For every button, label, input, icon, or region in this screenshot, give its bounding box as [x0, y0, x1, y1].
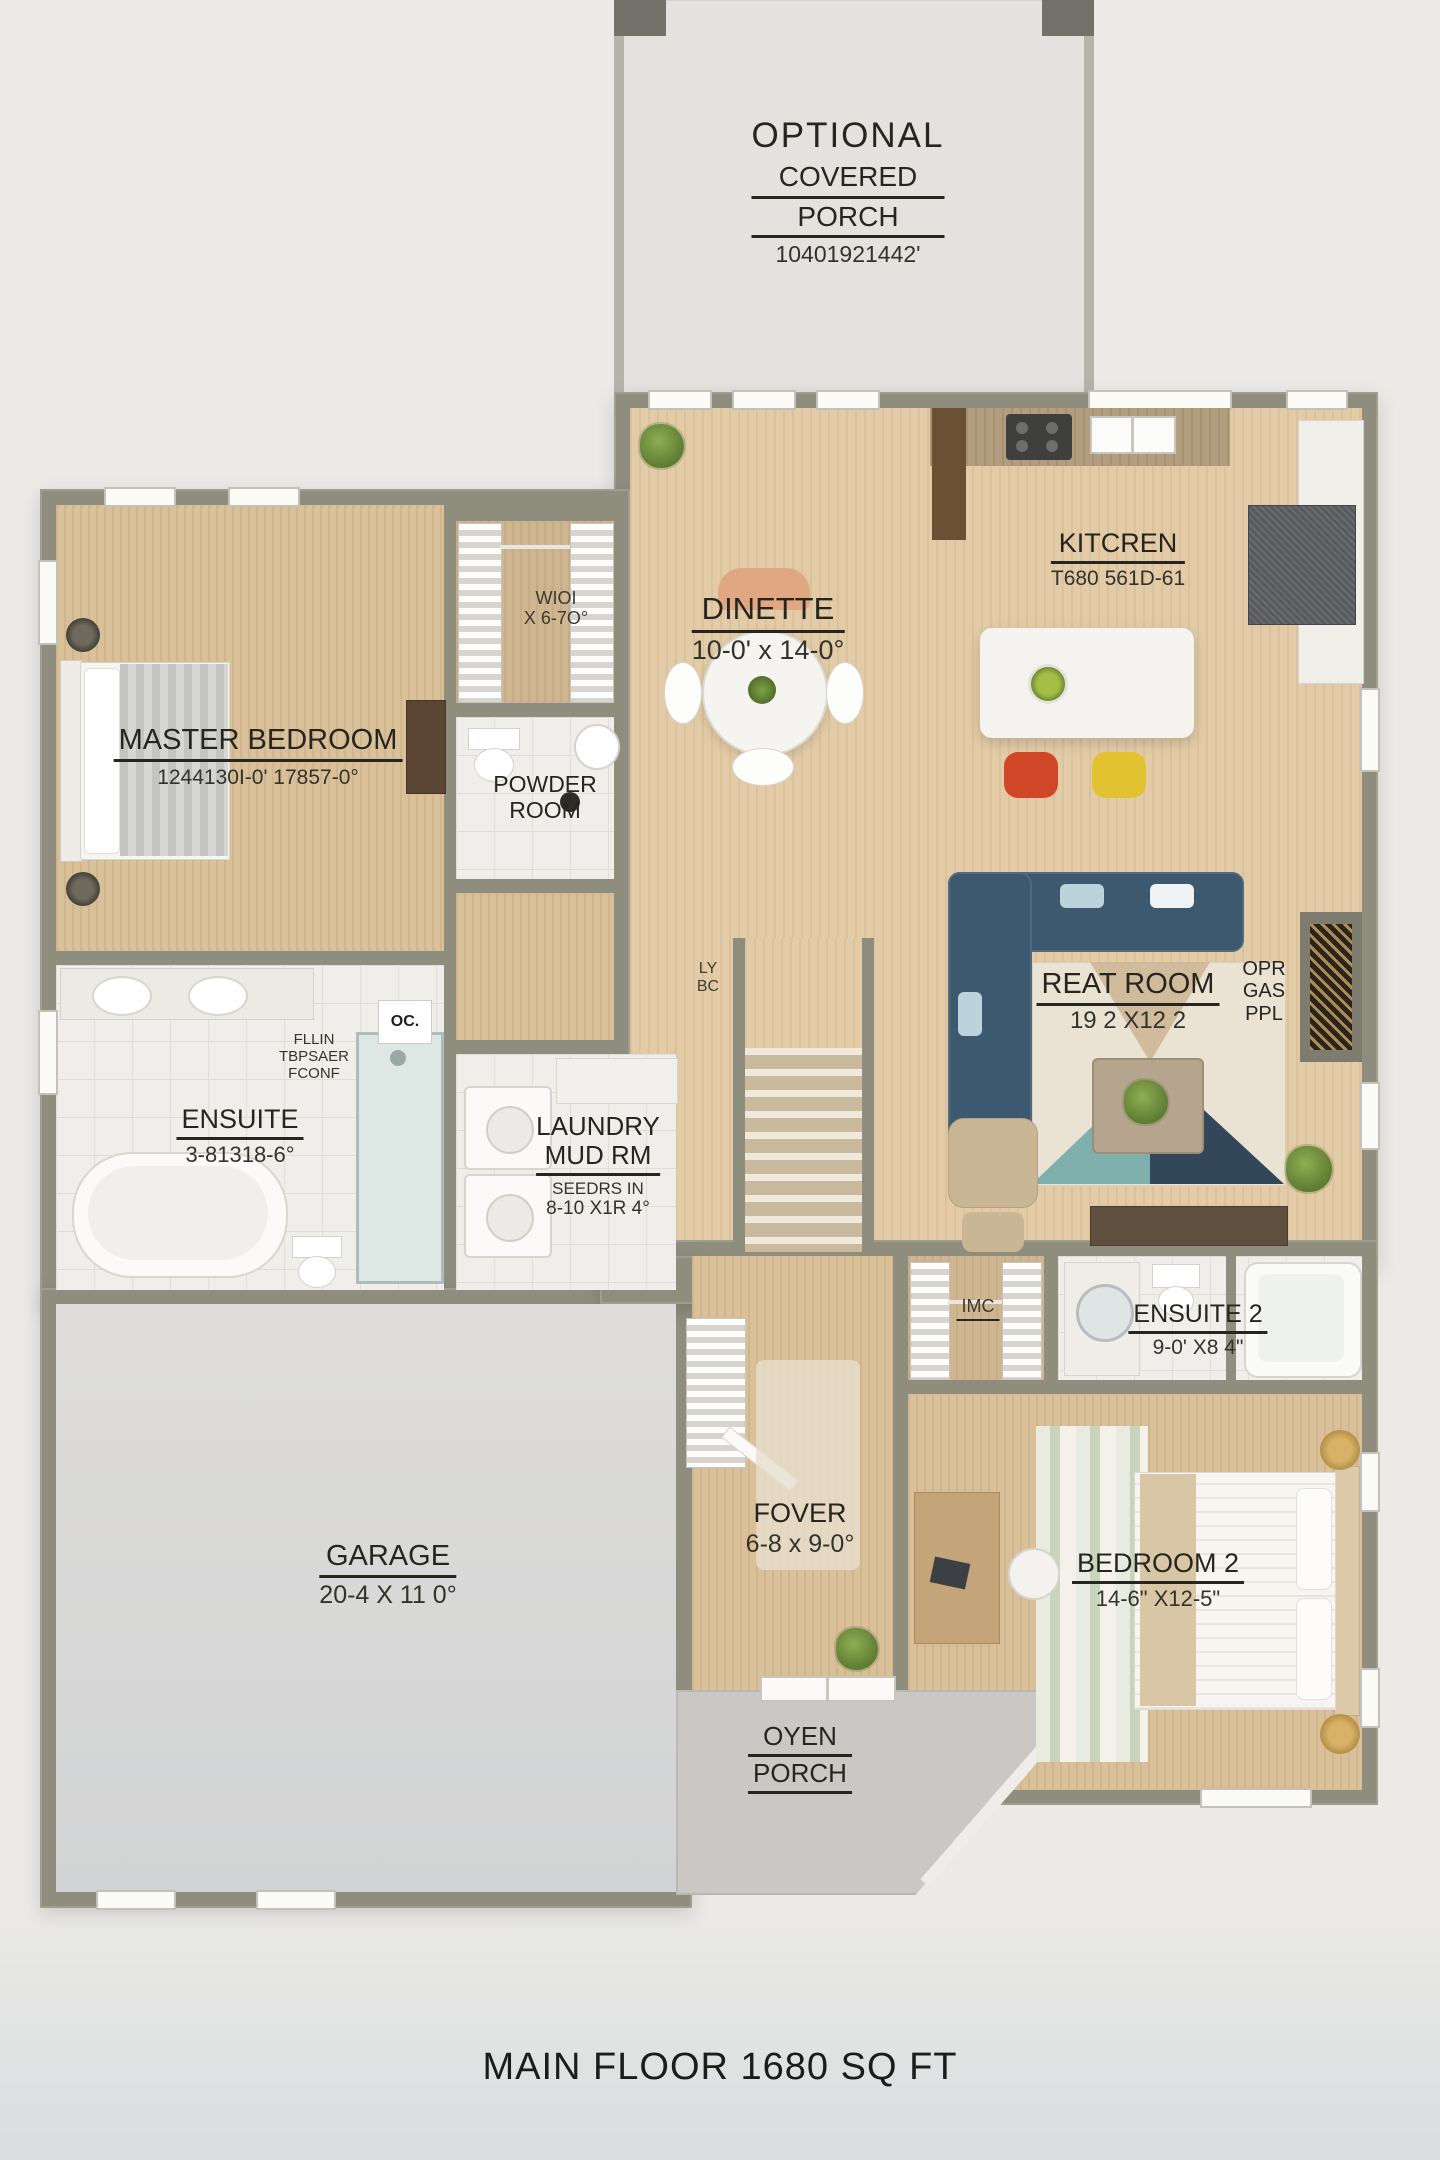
label-closet2: IMC	[957, 1296, 1000, 1321]
toilet-bowl	[298, 1256, 336, 1288]
window-kitchen-sink	[1088, 390, 1232, 410]
powder-sink	[574, 724, 620, 770]
front-door-split	[826, 1678, 829, 1700]
powder-toilet	[468, 728, 520, 750]
label-kitchen: KITCREN T680 561D-61	[1051, 528, 1185, 591]
page-title: MAIN FLOOR 1680 SQ FT	[483, 2046, 958, 2089]
ottoman	[962, 1212, 1024, 1252]
window	[1360, 1452, 1380, 1512]
label-front-porch: OYEN PORCH	[748, 1722, 852, 1794]
laundry-line1: LAUNDRY	[536, 1112, 660, 1141]
label-ensuite-note: FLLIN TBPSAER FCONF	[279, 1032, 349, 1082]
optional-porch-line2: COVERED	[752, 161, 945, 198]
label-fireplace: OPR GAS PPL	[1242, 958, 1285, 1025]
master-bed-headboard	[60, 660, 82, 862]
ensuite-note2: TBPSAER	[279, 1049, 349, 1066]
laundry-line2: MUD RM	[536, 1141, 660, 1176]
window	[1200, 1788, 1312, 1808]
window	[256, 1890, 336, 1910]
stove-burner	[1016, 422, 1028, 434]
armchair	[948, 1118, 1038, 1208]
fireplace-line2: GAS	[1242, 980, 1285, 1002]
window	[1360, 1668, 1380, 1728]
nightstand	[66, 872, 100, 906]
sofa-pillow	[1060, 884, 1104, 908]
optional-porch-line3: PORCH	[752, 201, 945, 238]
optional-porch-line1: OPTIONAL	[752, 116, 945, 155]
dinette-name: DINETTE	[692, 592, 845, 633]
porch-post	[614, 0, 666, 36]
dresser	[406, 700, 446, 794]
window	[1360, 688, 1380, 772]
stove-burner	[1046, 422, 1058, 434]
sofa-pillow	[958, 992, 982, 1036]
closet2-name: IMC	[957, 1296, 1000, 1321]
label-ensuite2: ENSUITE 2 9-0' X8 4"	[1128, 1300, 1267, 1360]
wic-line2: X 6-7O°	[524, 608, 588, 628]
garage-dims: 20-4 X 11 0°	[319, 1581, 456, 1609]
ensuite2-mirror	[1076, 1284, 1134, 1342]
garage-name: GARAGE	[319, 1540, 456, 1578]
dinette-chair	[826, 662, 864, 724]
dinette-chair	[732, 748, 794, 786]
nightstand-gold	[1320, 1714, 1360, 1754]
foyer-dims: 6-8 x 9-0°	[746, 1530, 855, 1558]
window	[816, 390, 880, 410]
window	[1286, 390, 1348, 410]
media-console	[1090, 1206, 1288, 1246]
window	[732, 390, 796, 410]
window	[38, 1010, 58, 1095]
label-foyer: FOVER 6-8 x 9-0°	[746, 1498, 855, 1558]
kitchen-island	[980, 628, 1194, 738]
master-dims: 1244130I-0' 17857-0°	[114, 766, 403, 790]
window	[104, 487, 176, 507]
laundry-note: SEEDRS IN	[536, 1179, 660, 1198]
label-garage: GARAGE 20-4 X 11 0°	[319, 1540, 456, 1609]
window	[38, 560, 58, 645]
toilet	[292, 1236, 342, 1258]
bed2-pillow	[1296, 1598, 1332, 1700]
refrigerator	[1248, 505, 1356, 625]
ensuite2-tub-inner	[1258, 1274, 1344, 1362]
kitchen-sink-divider	[1131, 418, 1134, 452]
nightstand	[66, 618, 100, 652]
dinette-dims: 10-0' x 14-0°	[692, 635, 845, 665]
label-dinette: DINETTE 10-0' x 14-0°	[692, 592, 845, 665]
wic-line1: WIOI	[524, 588, 588, 608]
shower-tag: OC.	[378, 1000, 432, 1044]
plant	[1286, 1146, 1332, 1192]
main-floor-title: MAIN FLOOR 1680 SQ FT	[483, 2046, 958, 2089]
floor-plan-canvas: { "title": "MAIN FLOOR 1680 SQ FT", "roo…	[0, 0, 1440, 2160]
washer-door	[486, 1106, 534, 1154]
window	[228, 487, 300, 507]
shower	[356, 1032, 444, 1284]
nightstand-gold	[1320, 1430, 1360, 1470]
kitchen-pantry	[932, 408, 966, 540]
sofa-pillow	[1150, 884, 1194, 908]
dryer-door	[486, 1194, 534, 1242]
foyer-name: FOVER	[746, 1498, 855, 1528]
powder-line2: ROOM	[493, 798, 597, 824]
closet-shelf	[458, 523, 502, 703]
shower-tag-text: OC.	[391, 1013, 419, 1031]
fruit-bowl	[1028, 664, 1068, 704]
porch-line2: PORCH	[748, 1759, 852, 1794]
stairs-note-line1: LY	[697, 960, 719, 978]
bottom-shade	[0, 1900, 1440, 2160]
kitchen-dims: T680 561D-61	[1051, 567, 1185, 591]
porch-post	[1042, 0, 1094, 36]
ensuite-note3: FCONF	[279, 1066, 349, 1083]
bed2-headboard	[1334, 1466, 1360, 1716]
label-great-room: REAT ROOM 19 2 X12 2	[1037, 968, 1220, 1035]
ensuite-name: ENSUITE	[176, 1104, 303, 1140]
window	[648, 390, 712, 410]
island-stool-red	[1004, 752, 1058, 798]
ensuite-sink	[92, 976, 152, 1016]
window	[96, 1890, 176, 1910]
dinette-chair	[664, 662, 702, 724]
label-stairs-note: LY BC	[697, 960, 719, 996]
stair-treads	[745, 1048, 862, 1252]
label-master: MASTER BEDROOM 1244130I-0' 17857-0°	[114, 724, 403, 790]
porch-side-rail	[614, 36, 624, 405]
stairs-note-line2: BC	[697, 978, 719, 996]
bathtub-inner	[88, 1166, 268, 1260]
closet2-shelf	[1002, 1262, 1042, 1380]
stair-wall	[862, 938, 874, 1252]
ensuite-sink	[188, 976, 248, 1016]
fireplace-insert	[1310, 924, 1352, 1050]
master-name: MASTER BEDROOM	[114, 724, 403, 762]
optional-porch-dims: 10401921442'	[752, 242, 945, 268]
porch-side-rail	[1084, 36, 1094, 405]
great-name: REAT ROOM	[1037, 968, 1220, 1006]
closet2-shelf	[910, 1262, 950, 1380]
plant	[1124, 1080, 1168, 1124]
shower-head	[390, 1050, 406, 1066]
ensuite-note1: FLLIN	[279, 1032, 349, 1049]
ensuite-dims: 3-81318-6°	[176, 1143, 303, 1168]
closet-rod	[500, 545, 570, 549]
kitchen-stove	[1006, 414, 1072, 460]
bedroom2-dims: 14-6" X12-5"	[1072, 1587, 1244, 1612]
label-optional-porch: OPTIONAL COVERED PORCH 10401921442'	[752, 116, 945, 268]
label-bedroom2: BEDROOM 2 14-6" X12-5"	[1072, 1548, 1244, 1612]
laundry-counter	[556, 1058, 678, 1104]
stove-burner	[1046, 440, 1058, 452]
porch-line1: OYEN	[748, 1722, 852, 1757]
kitchen-counter-top	[930, 408, 1230, 466]
stair-landing	[745, 938, 862, 1048]
island-stool-yellow	[1092, 752, 1146, 798]
floor-hall-left	[456, 893, 614, 1040]
label-laundry: LAUNDRY MUD RM SEEDRS IN 8-10 X1R 4°	[536, 1112, 660, 1220]
fireplace-line1: OPR	[1242, 958, 1285, 980]
window	[1360, 1082, 1380, 1150]
kitchen-name: KITCREN	[1051, 528, 1185, 564]
ensuite2-dims: 9-0' X8 4"	[1128, 1336, 1267, 1360]
label-powder: POWDER ROOM	[493, 772, 597, 824]
label-ensuite: ENSUITE 3-81318-6°	[176, 1104, 303, 1168]
desk-chair	[1008, 1548, 1060, 1600]
ensuite2-name: ENSUITE 2	[1128, 1300, 1267, 1334]
great-dims: 19 2 X12 2	[1037, 1008, 1220, 1035]
powder-line1: POWDER	[493, 772, 597, 798]
bedroom2-name: BEDROOM 2	[1072, 1548, 1244, 1584]
plant	[836, 1628, 878, 1670]
bed2-pillow	[1296, 1488, 1332, 1590]
plant	[640, 424, 684, 468]
label-wic: WIOI X 6-7O°	[524, 588, 588, 628]
ensuite2-toilet	[1152, 1264, 1200, 1288]
fireplace-line3: PPL	[1242, 1003, 1285, 1025]
laundry-dims: 8-10 X1R 4°	[536, 1198, 660, 1219]
stair-wall	[733, 938, 745, 1252]
stove-burner	[1016, 440, 1028, 452]
dinette-centerpiece	[748, 676, 776, 704]
